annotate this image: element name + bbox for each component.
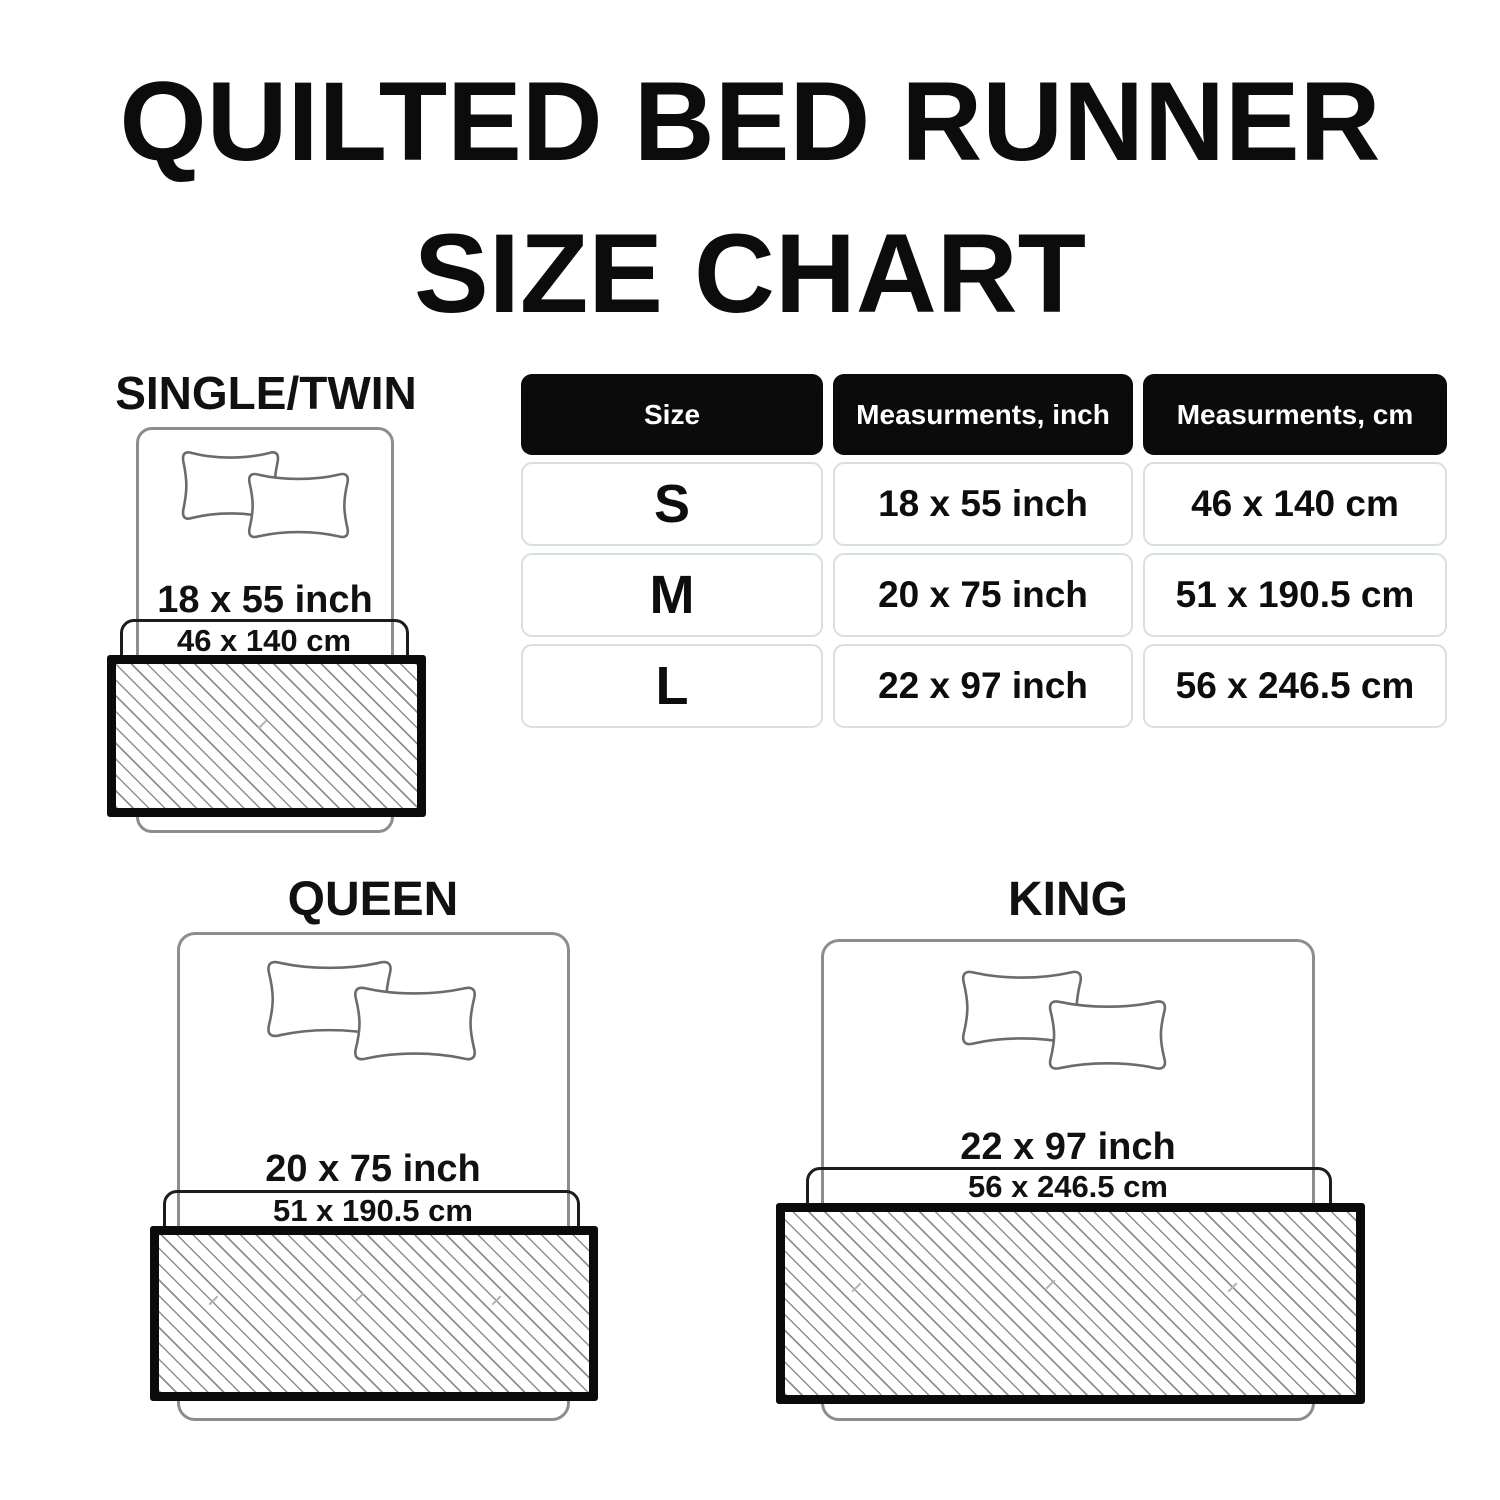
stitch-mark <box>1228 1283 1245 1300</box>
page-title-line1: QUILTED BED RUNNER <box>0 46 1500 198</box>
table-cell-size-m: M <box>521 553 823 637</box>
size-chart-infographic: QUILTED BED RUNNER SIZE CHART SINGLE/TWI… <box>0 0 1500 1500</box>
table-cell-size-l: L <box>521 644 823 728</box>
dimension-cm-single: 46 x 140 cm <box>114 623 414 659</box>
table-cell-cm-s: 46 x 140 cm <box>1143 462 1447 546</box>
table-header-size: Size <box>521 374 823 455</box>
section-label-single-twin: SINGLE/TWIN <box>66 366 466 420</box>
table-cell-cm-m: 51 x 190.5 cm <box>1143 553 1447 637</box>
pillow-icon <box>244 468 353 543</box>
dimension-inch-king: 22 x 97 inch <box>918 1126 1218 1169</box>
runner-swatch-king <box>776 1203 1365 1404</box>
table-cell-size-s: S <box>521 462 823 546</box>
table-cell-inch-s: 18 x 55 inch <box>833 462 1133 546</box>
stitch-mark <box>1045 1279 1062 1296</box>
dimension-cm-king: 56 x 246.5 cm <box>918 1169 1218 1205</box>
stitch-mark <box>492 1295 509 1312</box>
page-title: QUILTED BED RUNNER SIZE CHART <box>0 46 1500 351</box>
table-cell-inch-m: 20 x 75 inch <box>833 553 1133 637</box>
runner-swatch-single <box>107 655 426 817</box>
stitch-mark <box>258 719 275 736</box>
table-cell-cm-l: 56 x 246.5 cm <box>1143 644 1447 728</box>
page-title-line2: SIZE CHART <box>0 198 1500 350</box>
dimension-inch-single: 18 x 55 inch <box>115 579 415 622</box>
pillow-icon <box>1044 995 1171 1075</box>
dimension-cm-queen: 51 x 190.5 cm <box>223 1193 523 1229</box>
stitch-mark <box>354 1292 371 1309</box>
section-label-king: KING <box>868 872 1268 927</box>
dimension-inch-queen: 20 x 75 inch <box>223 1148 523 1191</box>
table-header-cm: Measurments, cm <box>1143 374 1447 455</box>
size-table: Size Measurments, inch Measurments, cm S… <box>521 374 1447 728</box>
runner-swatch-queen <box>150 1226 598 1401</box>
stitch-mark <box>208 1295 225 1312</box>
pillow-icon <box>349 981 481 1066</box>
table-header-inch: Measurments, inch <box>833 374 1133 455</box>
table-cell-inch-l: 22 x 97 inch <box>833 644 1133 728</box>
stitch-mark <box>851 1283 868 1300</box>
section-label-queen: QUEEN <box>173 872 573 927</box>
